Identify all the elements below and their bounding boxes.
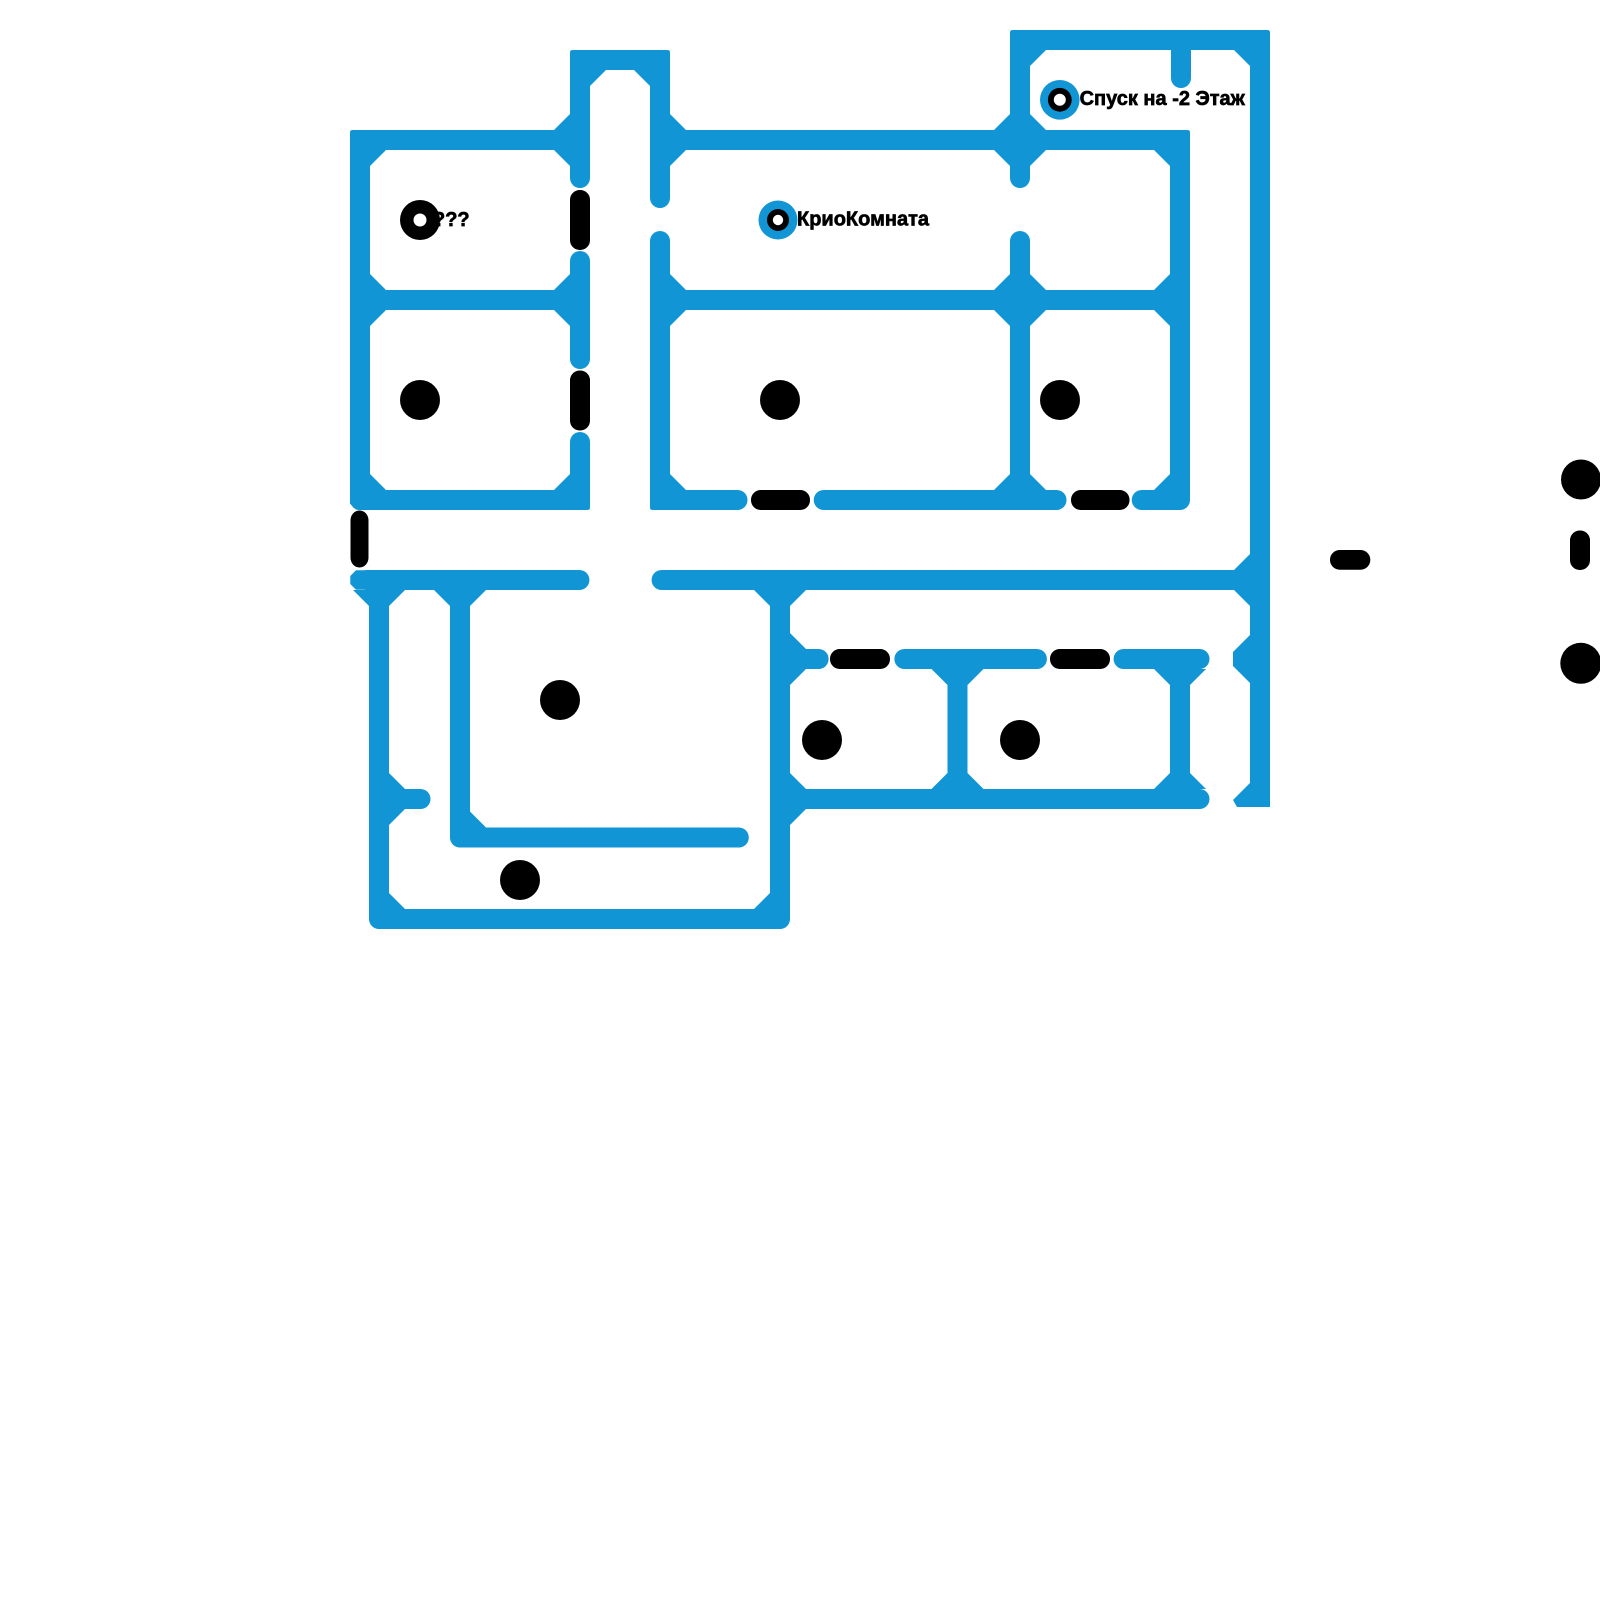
svg-text:КриоКомната: КриоКомната [797,208,930,230]
svg-text:Спуск на -2 Этаж: Спуск на -2 Этаж [1080,88,1246,110]
